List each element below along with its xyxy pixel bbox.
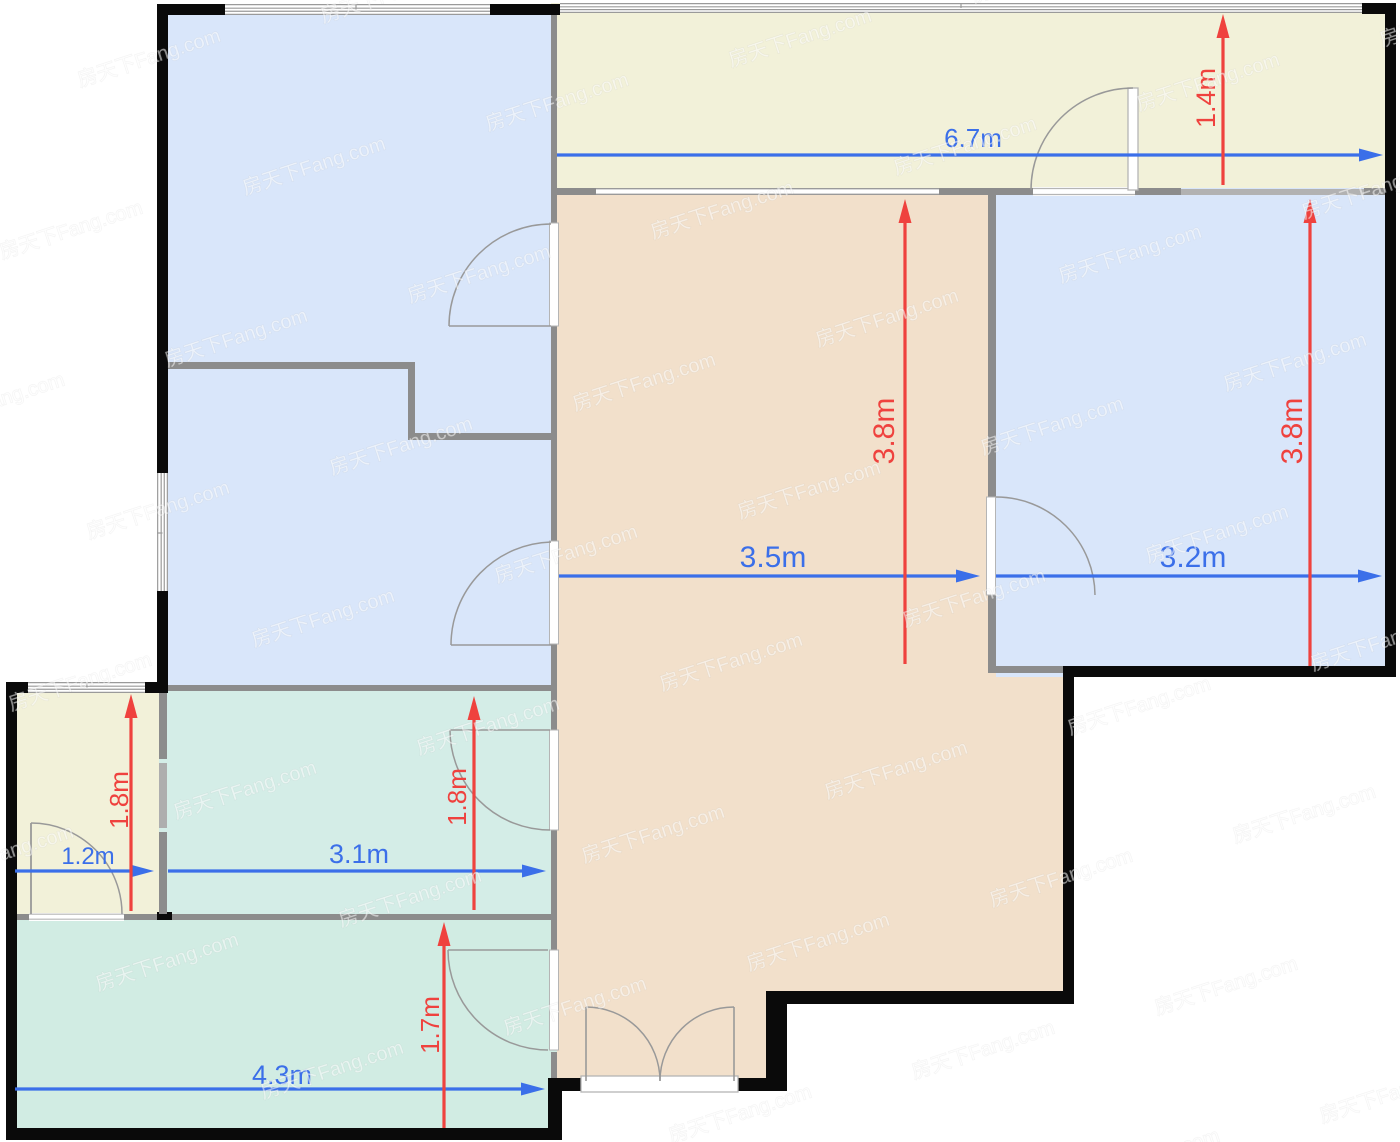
svg-text:3.8m: 3.8m bbox=[1276, 398, 1309, 465]
svg-text:1.7m: 1.7m bbox=[415, 996, 445, 1054]
svg-text:1.8m: 1.8m bbox=[104, 771, 134, 829]
svg-text:3.1m: 3.1m bbox=[329, 839, 389, 869]
svg-text:3.8m: 3.8m bbox=[868, 398, 901, 465]
svg-text:1.8m: 1.8m bbox=[442, 768, 472, 826]
svg-text:1.2m: 1.2m bbox=[61, 843, 114, 870]
svg-text:3.5m: 3.5m bbox=[740, 541, 807, 574]
